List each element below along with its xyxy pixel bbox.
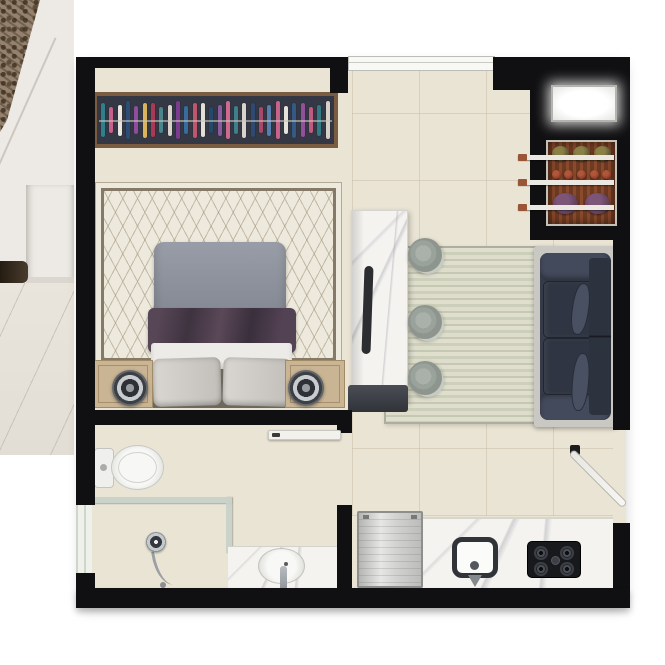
clothing-item bbox=[218, 105, 222, 136]
sofa-back-cushions bbox=[589, 258, 611, 415]
furniture-shadow-band bbox=[0, 261, 28, 283]
bar-stool bbox=[408, 305, 442, 339]
clothing-item bbox=[234, 106, 238, 134]
light-panel bbox=[551, 85, 617, 122]
wall-bathroom-kitchen bbox=[337, 505, 352, 592]
clothing-item bbox=[159, 107, 163, 133]
clothing-item bbox=[267, 105, 271, 136]
clothing-item bbox=[276, 101, 280, 139]
marble-floor-photo bbox=[0, 283, 74, 455]
shoe-shelf-bar bbox=[518, 180, 614, 185]
fridge-hinge bbox=[363, 515, 369, 519]
window bbox=[348, 56, 495, 71]
bathroom-door-leaf bbox=[268, 430, 341, 440]
cooktop-burner bbox=[560, 562, 574, 576]
cooktop-burner bbox=[534, 546, 548, 560]
clothing-item bbox=[193, 103, 197, 138]
clothing-item bbox=[209, 107, 213, 133]
closet-clothes bbox=[99, 97, 332, 143]
clothing-item bbox=[309, 107, 313, 133]
table-lamp-right bbox=[288, 370, 324, 406]
clothing-item bbox=[176, 101, 180, 139]
cooktop-burner bbox=[534, 562, 548, 576]
wardrobe bbox=[93, 92, 338, 148]
wall-column bbox=[26, 185, 74, 285]
bar-stool bbox=[408, 361, 442, 395]
shoe-item bbox=[564, 170, 573, 179]
shoe-item bbox=[577, 170, 586, 179]
shower-head bbox=[146, 532, 166, 552]
clothing-item bbox=[184, 106, 188, 134]
shoe-shelf-bar bbox=[518, 155, 614, 160]
clothing-item bbox=[226, 101, 230, 139]
clothing-item bbox=[326, 101, 330, 139]
shoe-rack-row bbox=[550, 192, 613, 215]
sink-faucet bbox=[468, 575, 482, 587]
refrigerator bbox=[357, 511, 423, 588]
wall-bottom bbox=[76, 588, 630, 608]
door-handle bbox=[272, 433, 280, 437]
wall-left-corner bbox=[76, 573, 95, 608]
wall-left bbox=[76, 57, 95, 505]
shoe-shelf-bar bbox=[518, 205, 614, 210]
shower-glass-panel bbox=[226, 497, 232, 553]
table-lamp-left bbox=[112, 370, 148, 406]
clothing-item bbox=[242, 103, 246, 138]
clothing-item bbox=[118, 105, 122, 136]
toilet-bowl bbox=[111, 445, 164, 490]
clothing-item bbox=[292, 103, 296, 138]
shower-glass-panel bbox=[93, 497, 232, 503]
floor-plan-image bbox=[0, 0, 665, 665]
wall-top bbox=[76, 57, 348, 68]
clothing-item bbox=[201, 103, 205, 137]
bar-stool bbox=[408, 238, 442, 272]
shoe-item bbox=[553, 193, 578, 214]
clothing-item bbox=[301, 103, 305, 137]
shoe-item bbox=[590, 170, 599, 179]
shoe-item bbox=[585, 193, 610, 214]
living-room-rug bbox=[384, 246, 558, 424]
clothing-item bbox=[151, 103, 155, 137]
sink-drain bbox=[470, 561, 479, 570]
clothing-item bbox=[134, 106, 138, 134]
clothing-item bbox=[317, 105, 321, 136]
shoe-item bbox=[602, 170, 611, 179]
kitchen-sink bbox=[452, 537, 498, 578]
bed-pillow-right bbox=[222, 357, 291, 407]
toilet-flush-button bbox=[100, 464, 107, 471]
clothing-item bbox=[168, 105, 172, 136]
basin-faucet bbox=[280, 566, 287, 590]
clothing-item bbox=[126, 101, 130, 139]
wall-bedroom-divider-stub bbox=[330, 57, 348, 93]
clothing-item bbox=[109, 107, 113, 133]
clothing-item bbox=[284, 106, 288, 134]
cooktop-burner bbox=[560, 546, 574, 560]
marble-island bbox=[351, 210, 408, 403]
gas-cooktop bbox=[527, 541, 581, 578]
clothing-item bbox=[143, 103, 147, 138]
bed-pillow-left bbox=[152, 357, 221, 407]
cooktop-knob bbox=[551, 556, 560, 565]
clothing-item bbox=[251, 103, 255, 137]
shoe-rack-row bbox=[550, 169, 613, 180]
fridge-hinge bbox=[411, 515, 417, 519]
shoe-item bbox=[552, 170, 561, 179]
clothing-item bbox=[259, 107, 263, 133]
clothing-item bbox=[101, 103, 105, 137]
background-photo-strip bbox=[0, 0, 74, 455]
shower-glass-wall-segment bbox=[76, 505, 92, 573]
wall-bedroom-bathroom bbox=[76, 410, 352, 425]
island-base-cap bbox=[348, 385, 408, 412]
